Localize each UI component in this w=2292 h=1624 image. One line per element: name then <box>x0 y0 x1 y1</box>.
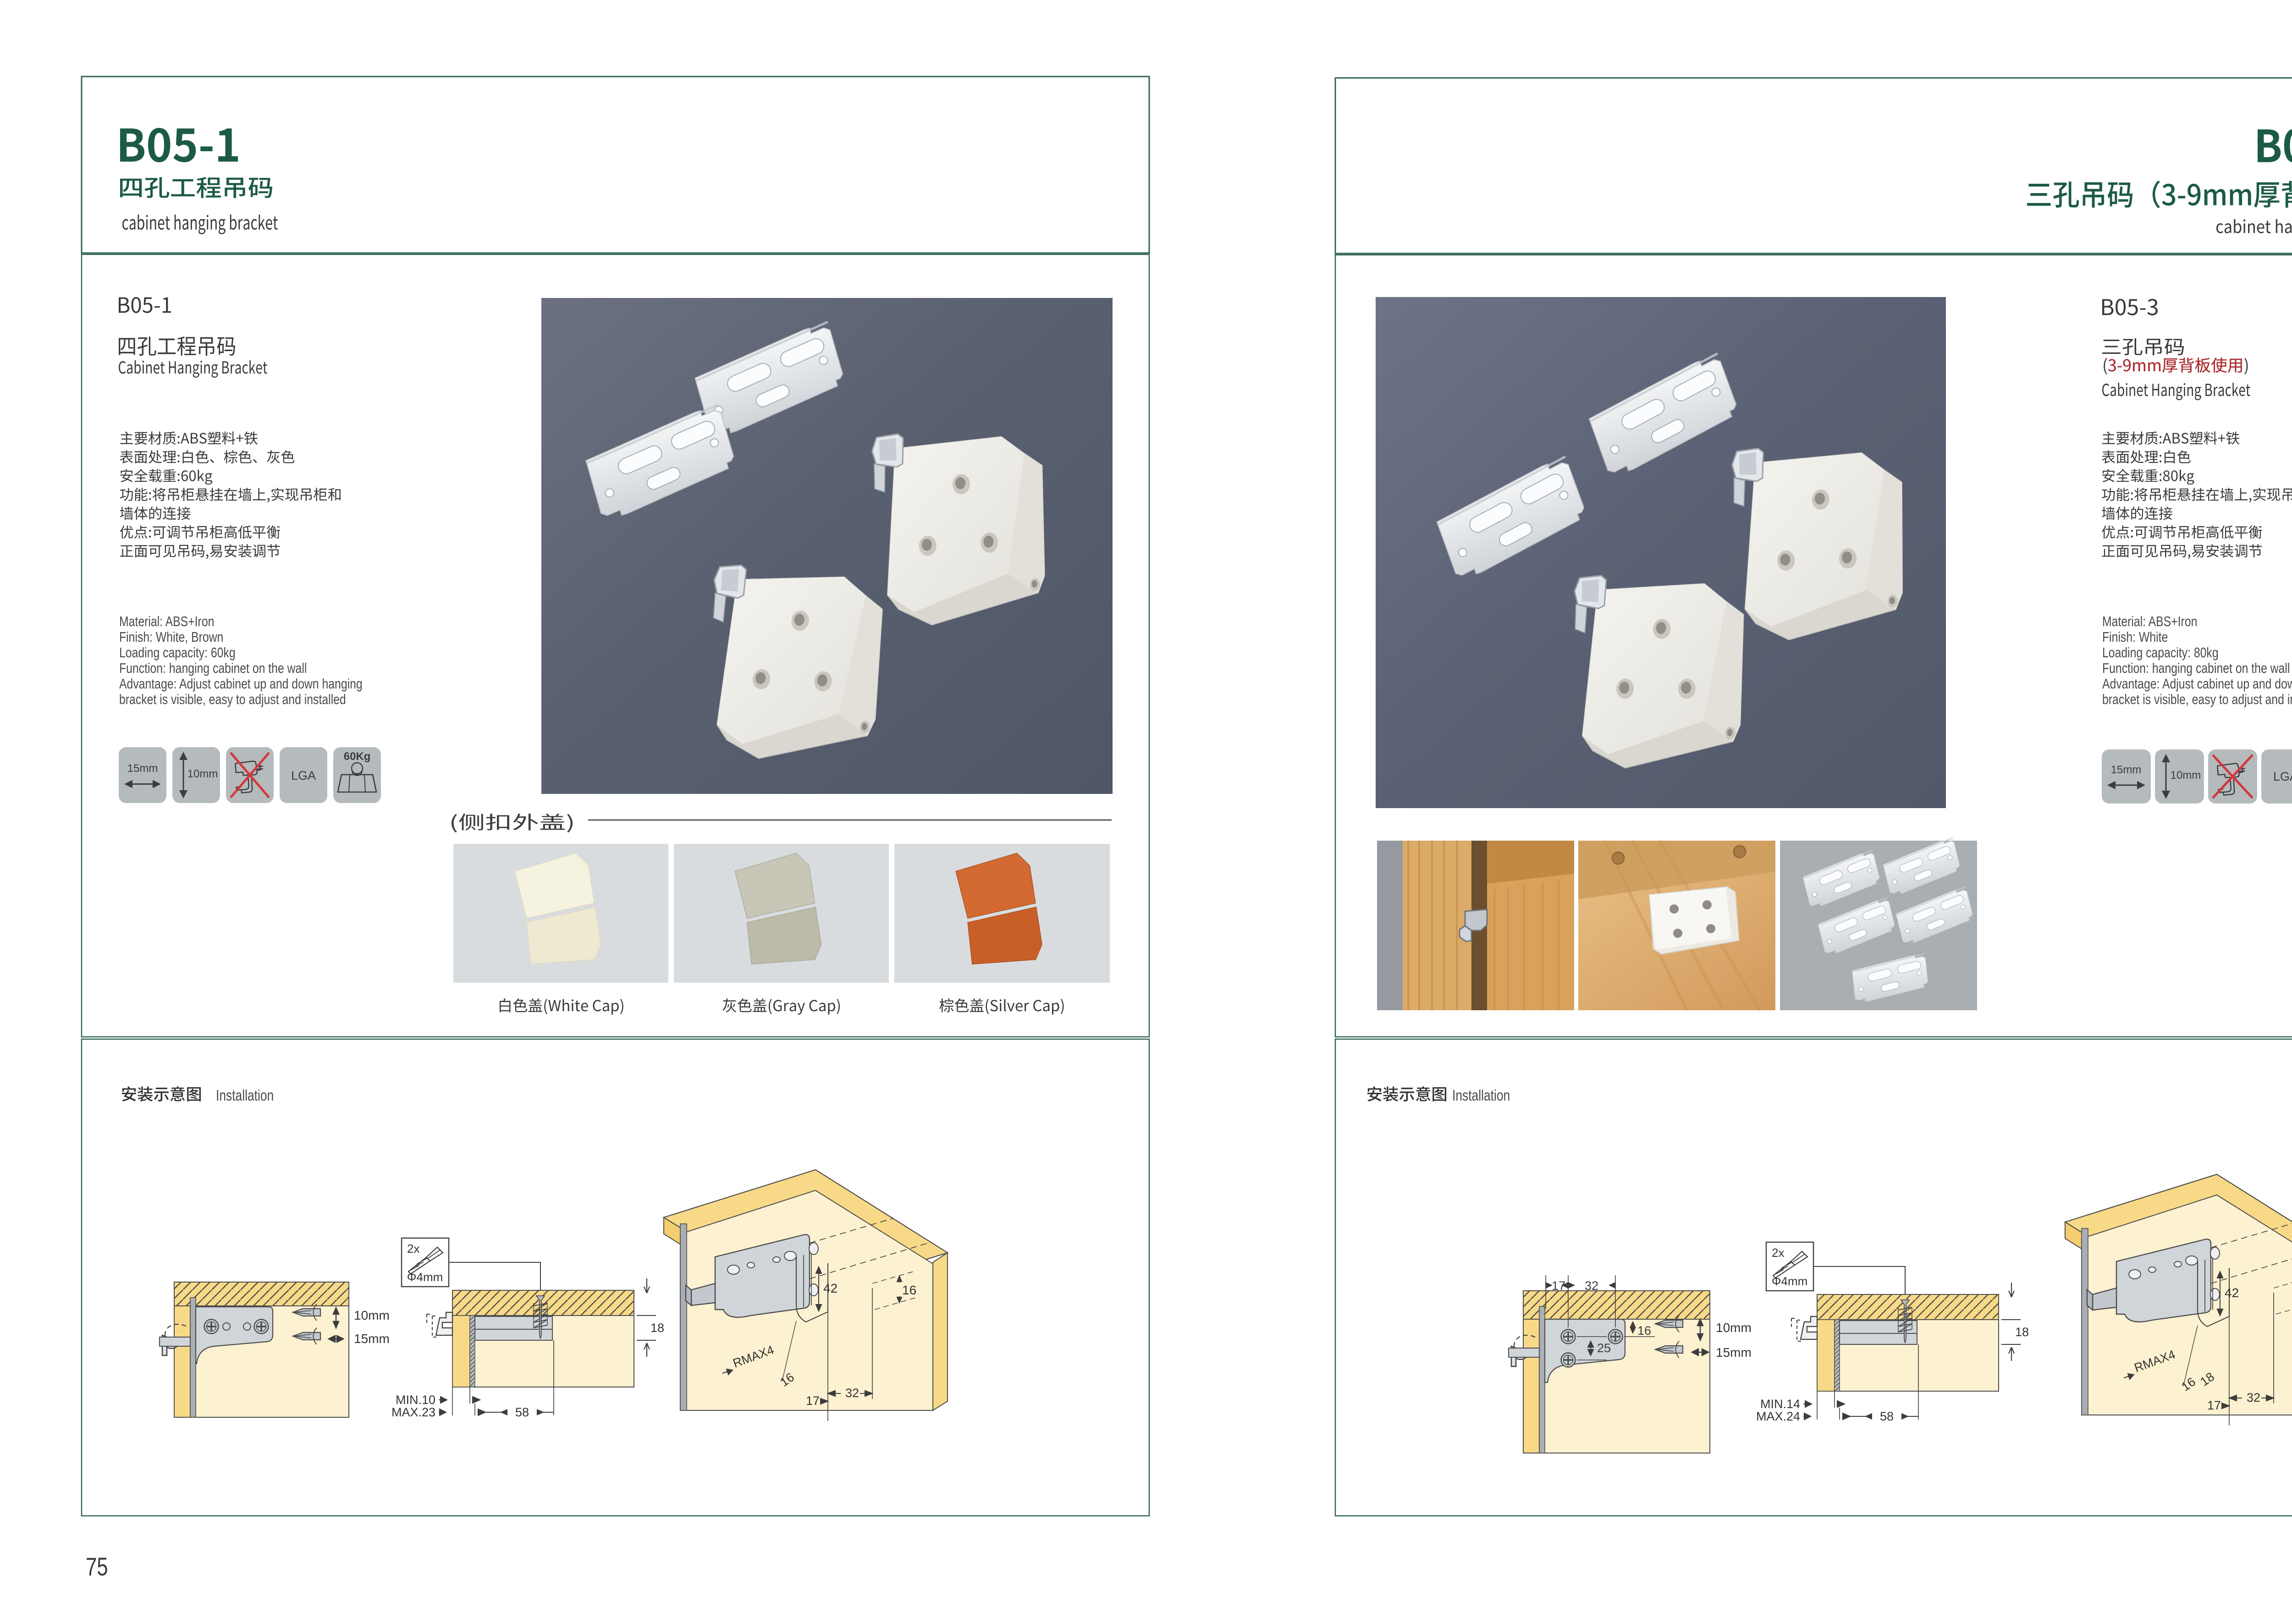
svg-text:Installation: Installation <box>1452 1087 1510 1104</box>
svg-text:bracket is visible, easy to ad: bracket is visible, easy to adjust and i… <box>119 691 346 707</box>
svg-text:Φ4mm: Φ4mm <box>407 1270 443 1284</box>
svg-text:Finish: White, Brown: Finish: White, Brown <box>119 629 223 644</box>
svg-text:17: 17 <box>2207 1398 2221 1412</box>
svg-text:32: 32 <box>845 1386 859 1400</box>
svg-text:Installation: Installation <box>216 1087 274 1104</box>
svg-text:10mm: 10mm <box>187 768 218 780</box>
svg-text:Advantage: Adjust cabinet up a: Advantage: Adjust cabinet up and down ha… <box>2102 676 2292 691</box>
svg-text:15mm: 15mm <box>354 1332 390 1346</box>
svg-text:bracket is visible, easy to ad: bracket is visible, easy to adjust and i… <box>2102 691 2292 707</box>
svg-text:10mm: 10mm <box>354 1308 390 1322</box>
svg-text:58: 58 <box>515 1405 529 1419</box>
svg-text:Material: ABS+Iron: Material: ABS+Iron <box>2102 613 2197 629</box>
svg-text:LGA: LGA <box>291 769 316 782</box>
svg-text:15mm: 15mm <box>127 762 158 775</box>
svg-text:Material: ABS+Iron: Material: ABS+Iron <box>119 613 214 629</box>
svg-text:MIN.14: MIN.14 <box>1760 1397 1800 1411</box>
svg-text:MAX.24: MAX.24 <box>1756 1409 1800 1423</box>
svg-text:Finish: White: Finish: White <box>2102 629 2168 644</box>
svg-text:25: 25 <box>1597 1341 1611 1355</box>
svg-text:10mm: 10mm <box>1716 1321 1752 1335</box>
svg-text:32: 32 <box>1585 1279 1598 1293</box>
svg-text:Function: hanging cabinet on t: Function: hanging cabinet on the wall <box>2102 660 2290 676</box>
svg-text:60Kg: 60Kg <box>344 750 371 763</box>
svg-text:16: 16 <box>902 1283 916 1297</box>
svg-text:17: 17 <box>806 1394 820 1408</box>
svg-text:Φ4mm: Φ4mm <box>1772 1274 1808 1288</box>
svg-text:MIN.10: MIN.10 <box>396 1393 435 1407</box>
svg-text:Advantage: Adjust cabinet up a: Advantage: Adjust cabinet up and down ha… <box>119 676 363 691</box>
svg-text:MAX.23: MAX.23 <box>391 1405 435 1419</box>
svg-text:15mm: 15mm <box>2111 764 2142 776</box>
svg-text:32: 32 <box>2247 1391 2260 1404</box>
svg-text:18: 18 <box>2015 1325 2029 1339</box>
svg-text:15mm: 15mm <box>1716 1345 1752 1360</box>
svg-text:Function: hanging cabinet on t: Function: hanging cabinet on the wall <box>119 660 307 676</box>
svg-text:75: 75 <box>86 1552 108 1581</box>
svg-text:Loading capacity: 60kg: Loading capacity: 60kg <box>119 644 236 660</box>
svg-text:42: 42 <box>823 1281 837 1295</box>
svg-text:2x: 2x <box>407 1242 419 1255</box>
svg-text:Loading capacity: 80kg: Loading capacity: 80kg <box>2102 644 2219 660</box>
svg-text:2x: 2x <box>1772 1246 1784 1260</box>
svg-text:16: 16 <box>1637 1324 1651 1338</box>
svg-text:58: 58 <box>1880 1409 1894 1423</box>
svg-text:LGA: LGA <box>2273 770 2292 783</box>
svg-text:10mm: 10mm <box>2171 769 2201 782</box>
svg-text:42: 42 <box>2225 1286 2239 1300</box>
svg-text:17: 17 <box>1552 1279 1565 1293</box>
svg-text:18: 18 <box>650 1321 664 1335</box>
